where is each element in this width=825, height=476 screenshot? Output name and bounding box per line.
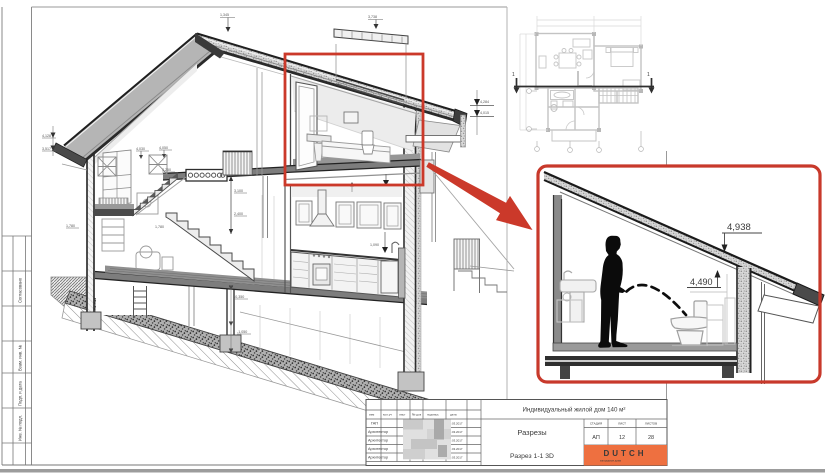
svg-text:-1,050: -1,050: [237, 330, 247, 334]
svg-text:1,090: 1,090: [370, 243, 379, 247]
svg-text:1,780: 1,780: [66, 224, 75, 228]
svg-text:Архитектор: Архитектор: [368, 447, 388, 451]
svg-text:Архитектор: Архитектор: [368, 430, 388, 434]
svg-text:28: 28: [648, 435, 654, 441]
svg-text:3,250: 3,250: [162, 168, 171, 172]
svg-text:4,128: 4,128: [42, 134, 51, 138]
svg-text:4,015: 4,015: [480, 111, 489, 115]
svg-text:СТАДИЯ: СТАДИЯ: [590, 422, 602, 426]
svg-text:Взам. инв. №: Взам. инв. №: [18, 345, 23, 371]
svg-text:Разрез 1-1 3D: Разрез 1-1 3D: [510, 453, 554, 460]
svg-text:1,345: 1,345: [220, 13, 229, 17]
svg-text:3,517: 3,517: [42, 147, 51, 151]
svg-text:Архитектор: Архитектор: [368, 456, 388, 460]
svg-text:4,050: 4,050: [159, 146, 168, 150]
svg-text:Индивидуальный жилой дом 140 м: Индивидуальный жилой дом 140 м²: [523, 407, 626, 414]
svg-text:1,780: 1,780: [155, 225, 164, 229]
svg-text:изм: изм: [369, 413, 374, 417]
svg-text:4,030: 4,030: [136, 147, 145, 151]
svg-text:12: 12: [619, 435, 625, 441]
svg-text:4,284: 4,284: [480, 100, 489, 104]
svg-text:ЛИСТОВ: ЛИСТОВ: [645, 422, 657, 426]
svg-text:4,490: 4,490: [690, 277, 713, 287]
svg-text:№ док: № док: [412, 413, 422, 417]
svg-text:загородные дома: загородные дома: [600, 460, 622, 463]
svg-text:Разрезы: Разрезы: [517, 428, 546, 437]
svg-text:3,100: 3,100: [234, 189, 243, 193]
svg-text:Согласовано: Согласовано: [18, 277, 23, 303]
svg-text:3,738: 3,738: [368, 15, 377, 19]
svg-text:подпись: подпись: [427, 413, 439, 417]
svg-text:Архитектор: Архитектор: [368, 439, 388, 443]
svg-text:АП: АП: [592, 435, 600, 441]
svg-text:ЛИСТ: ЛИСТ: [618, 422, 626, 426]
svg-text:ГАП: ГАП: [371, 422, 378, 426]
svg-text:лист: лист: [399, 413, 406, 417]
svg-text:1: 1: [647, 72, 650, 78]
svg-text:2,400: 2,400: [234, 212, 243, 216]
svg-text:1: 1: [512, 72, 515, 78]
svg-text:Подп. и дата: Подп. и дата: [18, 381, 23, 406]
svg-text:4,938: 4,938: [727, 222, 751, 233]
svg-text:Инв. № подл.: Инв. № подл.: [18, 415, 23, 441]
svg-text:DUTCH: DUTCH: [604, 449, 647, 458]
svg-text:кол.уч: кол.уч: [383, 413, 392, 417]
svg-text:-0,350: -0,350: [234, 295, 244, 299]
svg-text:дата: дата: [450, 413, 457, 417]
